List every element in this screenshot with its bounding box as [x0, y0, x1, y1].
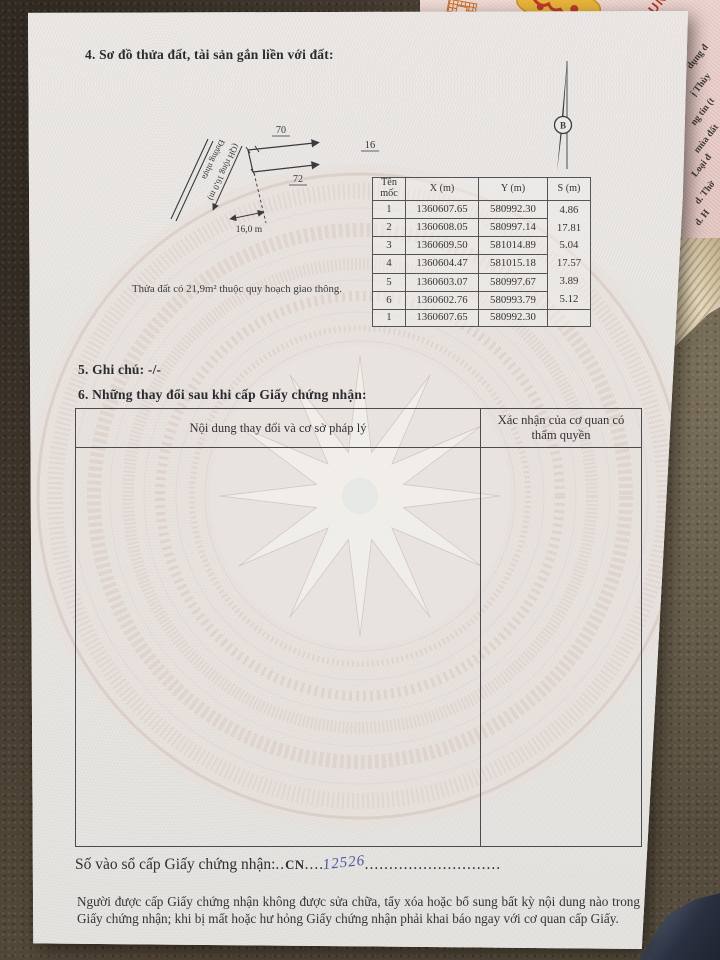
coord-header-s: S (m): [548, 178, 591, 201]
s-value: 17.81: [551, 223, 587, 234]
lot-number-bottom: 72: [293, 174, 303, 185]
cell-y: 580997.67: [479, 273, 548, 291]
s-value: 17.57: [551, 258, 587, 269]
cell-s-merged: 4.86 17.81 5.04 17.57 3.89 5.12: [548, 201, 591, 310]
cell-y: 580992.30: [479, 201, 548, 219]
table-row: 1 1360607.65 580992.30: [373, 310, 591, 327]
changes-col2-header: Xác nhận của cơ quan có thẩm quyền: [480, 409, 641, 448]
certificate-page: 4. Sơ đồ thửa đất, tài sản gắn liền với …: [28, 11, 688, 949]
lot-number-right: 16: [365, 140, 376, 151]
coordinate-table: Tên mốc X (m) Y (m) S (m) 1 1360607.65 5…: [372, 177, 591, 327]
registry-code: CN: [285, 858, 304, 872]
s-value: 4.86: [551, 205, 587, 216]
cell-x: 1360603.07: [406, 273, 479, 291]
cell-y: 581014.89: [479, 237, 548, 255]
cell-x: 1360609.50: [406, 237, 479, 255]
cell-y: 580997.14: [479, 219, 548, 237]
cell-moc: 2: [373, 219, 406, 237]
cell-s-last: [548, 310, 591, 327]
coord-header-y: Y (m): [479, 178, 548, 201]
certificate-page-wrap: 4. Sơ đồ thửa đất, tài sản gắn liền với …: [0, 0, 720, 960]
footer-note: Người được cấp Giấy chứng nhận không đượ…: [77, 893, 640, 928]
compass-north-label: B: [560, 121, 566, 131]
registry-dots: ............................: [365, 856, 502, 873]
lot-number-top: 70: [276, 125, 286, 136]
compass-north-arrow: B: [533, 53, 603, 183]
section4-title: 4. Sơ đồ thửa đất, tài sản gắn liền với …: [85, 47, 334, 63]
road-width-label: 16,0 m: [236, 225, 263, 235]
s-value: 5.04: [551, 240, 587, 251]
registry-dots: ..: [275, 856, 285, 873]
cell-y: 581015.18: [479, 255, 548, 273]
changes-col1-body: [76, 448, 480, 846]
s-value: 3.89: [551, 276, 587, 287]
section6-title: 6. Những thay đổi sau khi cấp Giấy chứng…: [78, 387, 367, 403]
s-value: 5.12: [551, 294, 587, 305]
cell-x: 1360607.65: [406, 310, 479, 327]
registry-label: Số vào sổ cấp Giấy chứng nhận:: [75, 856, 275, 873]
planning-note: Thửa đất có 21,9m² thuộc quy hoạch giao …: [132, 283, 342, 295]
cell-moc: 1: [373, 201, 406, 219]
cell-moc: 1: [373, 310, 406, 327]
cell-x: 1360604.47: [406, 255, 479, 273]
changes-col2-body: [480, 448, 641, 846]
photo-scene: DUN dụng đ ị Thùy ng tin (t mùa đất Loại…: [0, 0, 720, 960]
cell-moc: 4: [373, 255, 406, 273]
changes-col1-header: Nội dung thay đổi và cơ sở pháp lý: [76, 409, 480, 448]
registry-number-line: Số vào sổ cấp Giấy chứng nhận:..CN....12…: [75, 856, 501, 874]
cell-moc: 3: [373, 237, 406, 255]
cell-x: 1360607.65: [406, 201, 479, 219]
changes-table: Nội dung thay đổi và cơ sở pháp lý Xác n…: [75, 408, 642, 847]
cell-moc: 5: [373, 273, 406, 291]
cell-x: 1360602.76: [406, 291, 479, 309]
cell-y: 580992.30: [479, 310, 548, 327]
coord-header-x: X (m): [406, 178, 479, 201]
coord-header-moc: Tên mốc: [373, 178, 406, 201]
handwritten-registry-number: 12526: [322, 853, 366, 874]
cell-moc: 6: [373, 291, 406, 309]
table-row: 1 1360607.65 580992.30 4.86 17.81 5.04 1…: [373, 201, 591, 219]
cell-y: 580993.79: [479, 291, 548, 309]
section5-title: 5. Ghi chú: -/-: [78, 362, 161, 378]
cell-x: 1360608.05: [406, 219, 479, 237]
